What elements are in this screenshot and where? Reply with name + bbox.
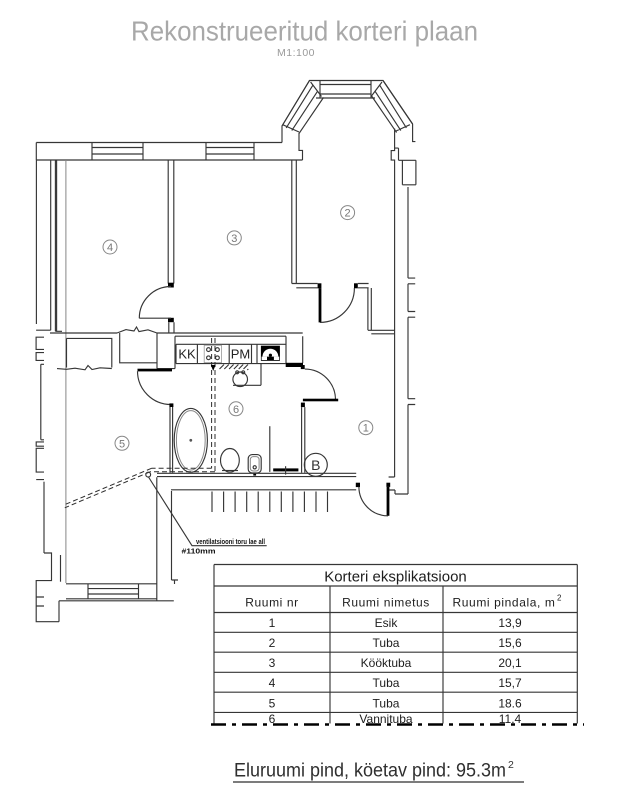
svg-text:18.6: 18.6 [498,696,522,710]
svg-text:15,6: 15,6 [498,636,522,650]
svg-text:2: 2 [269,636,276,650]
svg-text:5: 5 [119,438,125,450]
svg-text:Korteri eksplikatsioon: Korteri eksplikatsioon [324,569,467,586]
svg-text:3: 3 [269,656,276,670]
svg-text:13,9: 13,9 [498,616,522,630]
svg-text:1: 1 [269,616,276,630]
svg-text:Kööktuba: Kööktuba [361,656,412,670]
svg-text:20,1: 20,1 [498,656,522,670]
svg-text:Ruumi nimetus: Ruumi nimetus [342,596,430,610]
svg-text:#110mm: #110mm [182,549,216,556]
svg-text:2: 2 [557,594,562,603]
svg-text:4: 4 [269,676,276,690]
svg-text:Tuba: Tuba [373,676,400,690]
svg-text:4: 4 [107,242,113,254]
svg-text:Esik: Esik [375,616,399,630]
svg-text:B: B [311,457,320,473]
svg-text:2: 2 [508,759,514,771]
svg-text:Tuba: Tuba [373,696,400,710]
svg-text:Eluruumi pind, köetav pind:: Eluruumi pind, köetav pind: 95.3m [234,761,506,782]
svg-text:5: 5 [269,696,276,710]
svg-text:Tuba: Tuba [373,636,400,650]
svg-text:Ruumi nr: Ruumi nr [245,596,298,610]
svg-text:ventilatsiooni toru lae all: ventilatsiooni toru lae all [196,539,265,546]
svg-text:6: 6 [233,404,239,416]
svg-text:3: 3 [231,233,237,245]
svg-text:M1:100: M1:100 [277,47,315,59]
svg-text:Rekonstrueeritud korteri pla: Rekonstrueeritud korteri plaan [131,16,478,47]
svg-text:2: 2 [345,208,351,220]
svg-text:KK: KK [178,347,196,362]
svg-text:PM: PM [231,347,251,362]
svg-text:1: 1 [363,423,369,435]
svg-text:Ruumi pindala, m: Ruumi pindala, m [453,596,556,610]
svg-text:15,7: 15,7 [498,676,522,690]
